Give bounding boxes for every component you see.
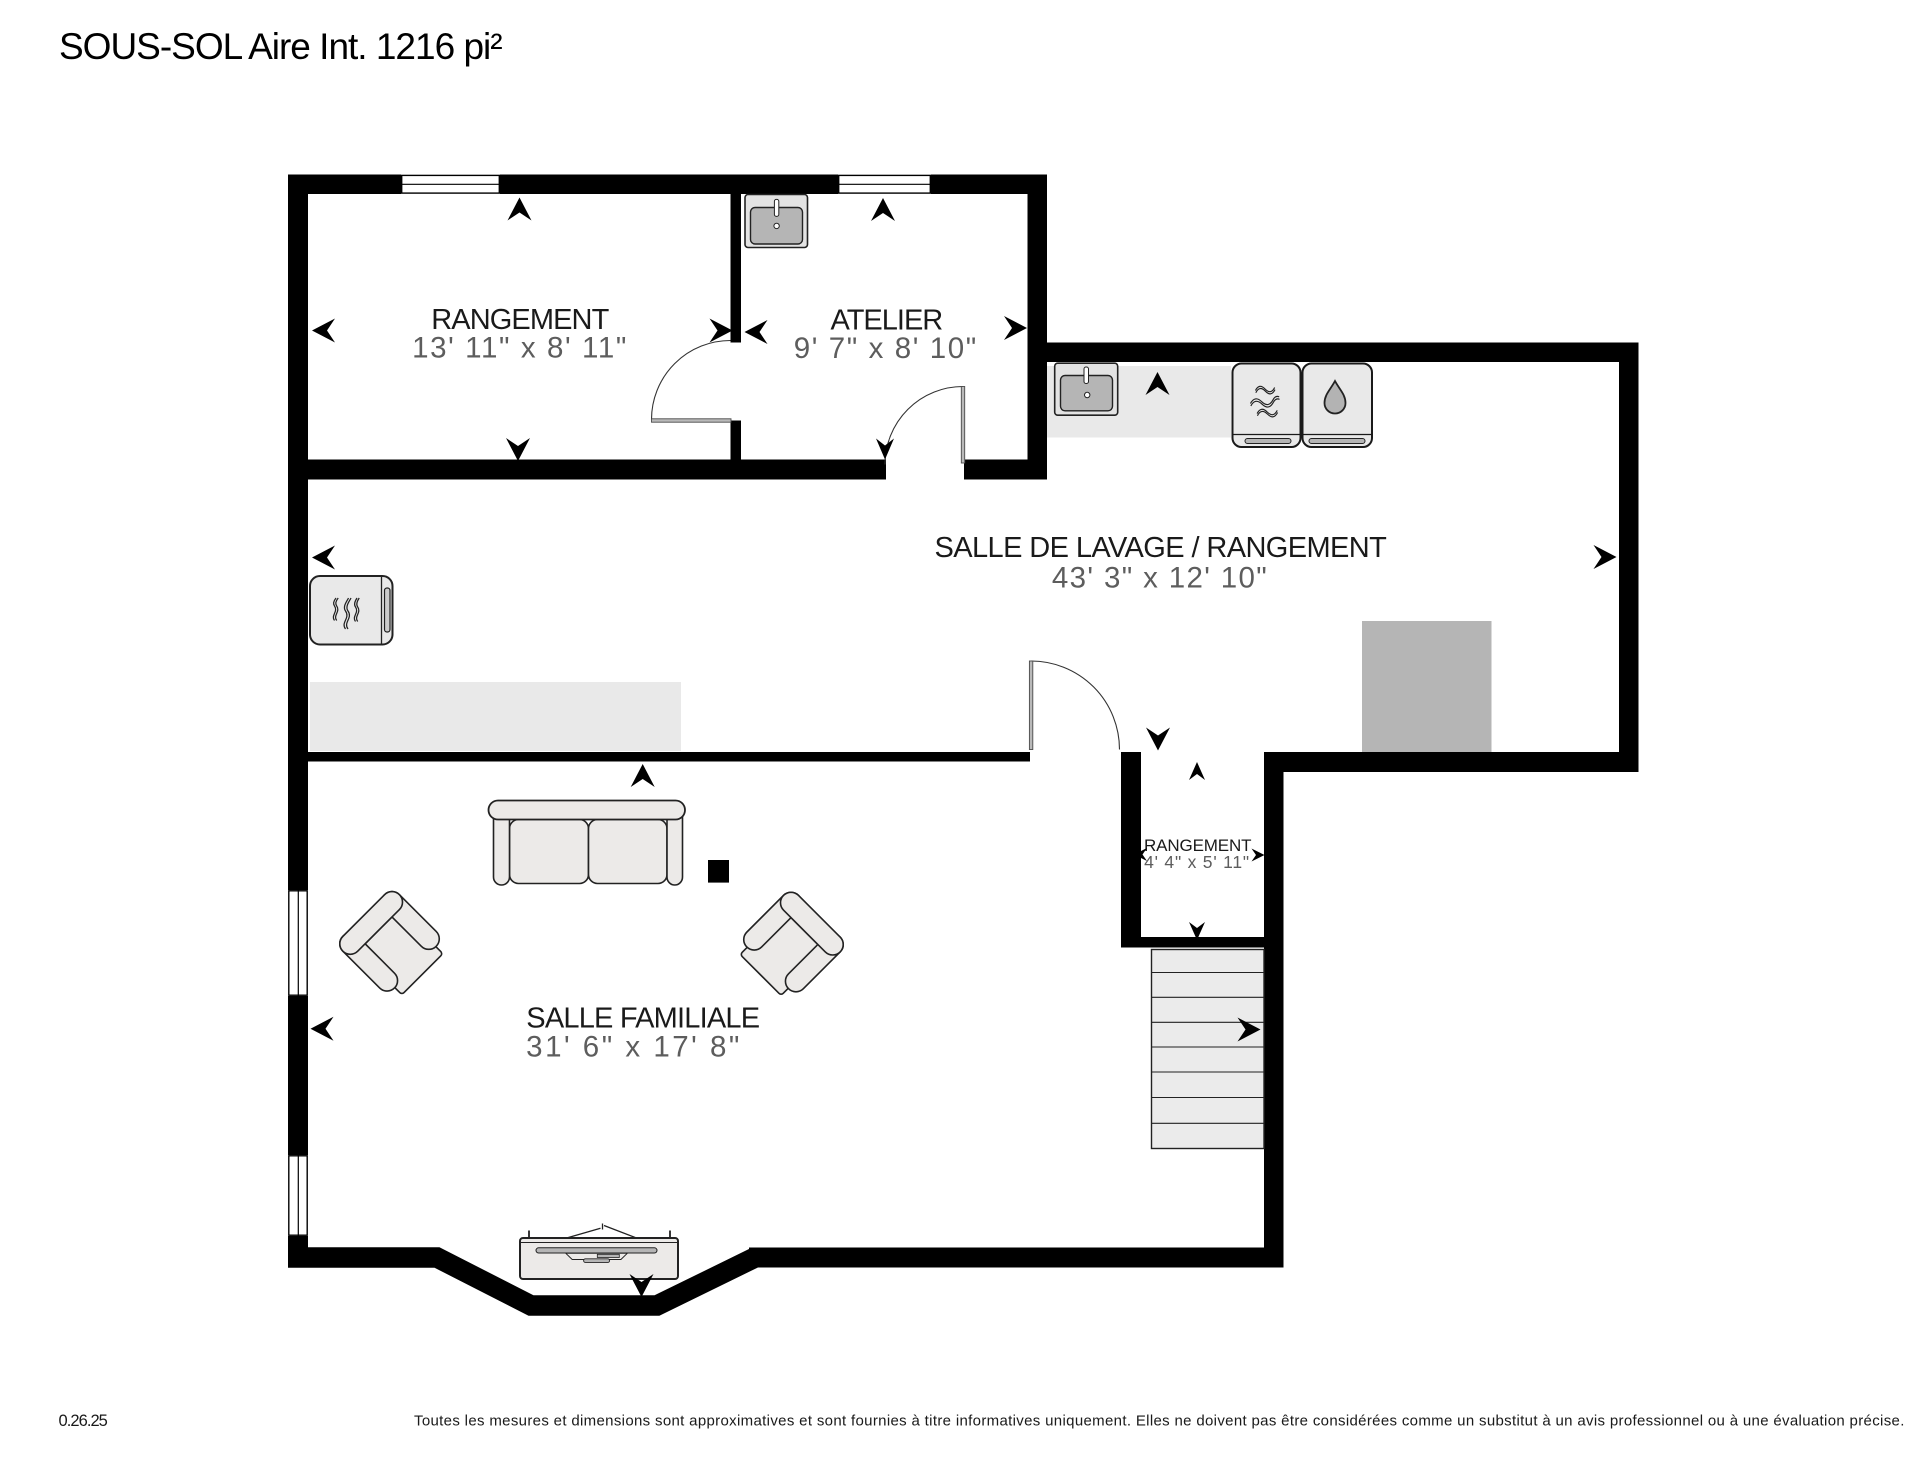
svg-text:SALLE DE LAVAGE / RANGEMENT: SALLE DE LAVAGE / RANGEMENT [935, 532, 1388, 564]
svg-text:0.26.25: 0.26.25 [59, 1412, 108, 1430]
svg-text:4' 4" x 5' 11": 4' 4" x 5' 11" [1144, 852, 1250, 872]
svg-text:Toutes les mesures et dimensio: Toutes les mesures et dimensions sont ap… [414, 1413, 1905, 1430]
svg-text:31' 6" x 17' 8": 31' 6" x 17' 8" [526, 1031, 742, 1064]
svg-text:13' 11" x 8' 11": 13' 11" x 8' 11" [412, 332, 628, 365]
svg-text:9' 7" x 8' 10": 9' 7" x 8' 10" [794, 332, 978, 365]
svg-text:43' 3" x 12' 10": 43' 3" x 12' 10" [1052, 562, 1268, 595]
svg-text:SOUS-SOL Aire Int. 1216 pi²: SOUS-SOL Aire Int. 1216 pi² [59, 26, 502, 67]
